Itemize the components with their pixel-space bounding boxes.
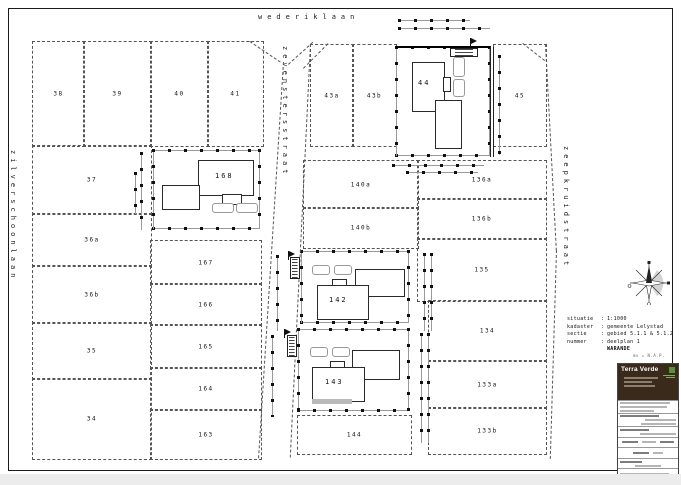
fence-line: [297, 328, 409, 331]
level-note: mv = N.A.P.: [633, 353, 665, 358]
dimension-line: [498, 55, 501, 155]
building-number: 143: [325, 378, 344, 386]
parcel-number: 133a: [429, 381, 546, 388]
flag-marker: [470, 38, 471, 47]
building-number: 168: [215, 172, 234, 180]
dimension-line: [140, 152, 143, 230]
road-marking: [312, 399, 352, 404]
entrance-plate: [287, 335, 297, 357]
annotation-text: gebied 5.1.1 & 5.1.2: [607, 331, 673, 337]
parcel-number: 43a: [311, 92, 353, 99]
fence-line: [407, 250, 410, 323]
parcel-number: 133b: [429, 428, 546, 435]
street-label: wederiklaan: [258, 13, 359, 21]
parcel-number: 36b: [33, 291, 151, 298]
annotation-row: nummer:deelplan 1: [567, 339, 673, 347]
car-icon: [334, 265, 352, 275]
parcel: 41: [207, 41, 264, 147]
dimension-line: [406, 171, 478, 174]
parcel-number: 39: [84, 91, 151, 98]
annotation-row: sectie:gebied 5.1.1 & 5.1.2: [567, 331, 673, 339]
site-plan-page: situatie:1:1000kadaster:gemeente Lelysta…: [0, 0, 681, 485]
dimension-line: [423, 253, 426, 331]
parcel-number: 140b: [304, 225, 418, 232]
fence-line: [152, 149, 260, 152]
boundary-line: [490, 47, 491, 157]
flag-marker: [288, 251, 289, 260]
flag-marker: [284, 329, 285, 338]
dimension-line: [427, 333, 430, 443]
parcel-number: 136b: [418, 216, 546, 223]
title-block-row: [618, 458, 678, 469]
logo-tagline-line: [663, 375, 675, 376]
parcel: 39: [83, 41, 152, 147]
parcel-number: 34: [33, 416, 151, 423]
car-icon: [453, 79, 465, 97]
parcel: 135: [417, 238, 547, 302]
parcel: 133b: [428, 407, 547, 455]
title-block-row: [618, 437, 678, 448]
parcel-number: 165: [151, 343, 261, 350]
title-block-row: [618, 400, 678, 413]
building-number: 44: [418, 79, 430, 87]
title-block-row: [618, 447, 678, 458]
parcel: 34: [32, 378, 152, 460]
building-number: 142: [329, 296, 348, 304]
dimension-line: [398, 19, 470, 22]
fence-line: [297, 328, 300, 411]
parcel: 43b: [352, 44, 397, 147]
dimension-line: [430, 253, 433, 331]
title-block: Terra Verde: [617, 363, 679, 480]
building-outline: [443, 77, 451, 92]
parcel: 164: [150, 367, 262, 411]
title-block-header: Terra Verde: [618, 364, 678, 400]
parcel: 45: [493, 44, 547, 147]
address-line: [624, 377, 658, 379]
company-logo-icon: [669, 367, 675, 373]
annotation-row: situatie:1:1000: [567, 316, 673, 324]
parcel-number: 136a: [418, 177, 546, 184]
parcel: 140b: [303, 207, 419, 249]
parcel: 40: [150, 41, 209, 147]
annotation-row: kadaster:gemeente Lelystad: [567, 324, 673, 332]
parcel: 144: [297, 415, 412, 455]
fence-line: [395, 154, 490, 157]
dimension-line: [134, 172, 137, 214]
fence-line: [152, 227, 260, 230]
parcel-number: 36a: [33, 237, 151, 244]
building-outline: [162, 185, 200, 210]
parcel-number: 45: [494, 92, 546, 99]
parcel: 136b: [417, 198, 547, 240]
dimension-line: [276, 255, 279, 331]
title-block-row: [618, 426, 678, 437]
annotation-text: deelplan 1: [607, 339, 640, 345]
parcel: 36a: [32, 213, 152, 267]
parcel: 43a: [310, 44, 354, 147]
title-block-row: [618, 413, 678, 426]
fence-line: [258, 149, 261, 229]
annotation-text: sectie: [567, 331, 601, 339]
parcel: 133a: [428, 360, 547, 409]
car-icon: [212, 203, 234, 213]
fence-line: [300, 250, 409, 253]
fence-line: [395, 46, 398, 156]
car-icon: [236, 203, 258, 213]
car-icon: [453, 57, 465, 77]
annotation-text: situatie: [567, 316, 601, 324]
logo-tagline-line: [666, 377, 675, 378]
parcel-number: 164: [151, 386, 261, 393]
parcel: 163: [150, 409, 262, 460]
fence-line: [300, 250, 303, 323]
address-line: [624, 385, 655, 387]
parcel-number: 167: [151, 259, 261, 266]
annotation-text: gemeente Lelystad: [607, 324, 663, 330]
parcel: 166: [150, 283, 262, 326]
address-line: [624, 381, 652, 383]
parcel-number: 43b: [353, 92, 396, 99]
title-block-body: [618, 400, 678, 479]
car-icon: [310, 347, 328, 357]
dimension-line: [392, 164, 484, 167]
annotation-text: 1:1000: [607, 316, 627, 322]
parcel-number: 144: [298, 432, 411, 439]
entrance-plate: [290, 257, 300, 279]
parcel-number: 134: [429, 328, 546, 335]
street-label: zilverschoonlaan: [9, 150, 17, 281]
parcel-number: 163: [151, 431, 261, 438]
parcel-number: 35: [33, 348, 151, 355]
fence-line: [297, 409, 409, 412]
parcel-number: 166: [151, 301, 261, 308]
parcel: 167: [150, 240, 262, 285]
parcel: 36b: [32, 265, 152, 324]
parcel-number: 41: [208, 91, 263, 98]
dimension-line: [398, 27, 490, 30]
parcel-number: 38: [33, 91, 84, 98]
drawing-annotation: situatie:1:1000kadaster:gemeente Lelysta…: [567, 316, 673, 354]
building-outline: [435, 100, 462, 149]
parcel: 134: [428, 300, 547, 362]
fence-line: [407, 328, 410, 411]
parcel: 165: [150, 324, 262, 369]
compass-rose-icon: [627, 261, 671, 305]
dimension-line: [420, 333, 423, 443]
annotation-text: kadaster: [567, 324, 601, 332]
parcel-number: 135: [418, 267, 546, 274]
parcel: 35: [32, 322, 152, 380]
fence-line: [300, 321, 409, 324]
dimension-line: [271, 335, 274, 417]
fence-line: [152, 149, 155, 229]
car-icon: [332, 347, 350, 357]
parcel: 140a: [303, 160, 419, 209]
page-margin-strip: [0, 474, 681, 485]
street-label: zeepkruidstraat: [562, 146, 570, 269]
entrance-plate: [450, 48, 478, 57]
boundary-line: [493, 47, 494, 157]
company-name: Terra Verde: [621, 366, 675, 373]
parcel: 38: [32, 41, 85, 147]
car-icon: [312, 265, 330, 275]
annotation-text: nummer: [567, 339, 601, 347]
parcel-number: 140a: [304, 181, 418, 188]
parcel-number: 40: [151, 91, 208, 98]
